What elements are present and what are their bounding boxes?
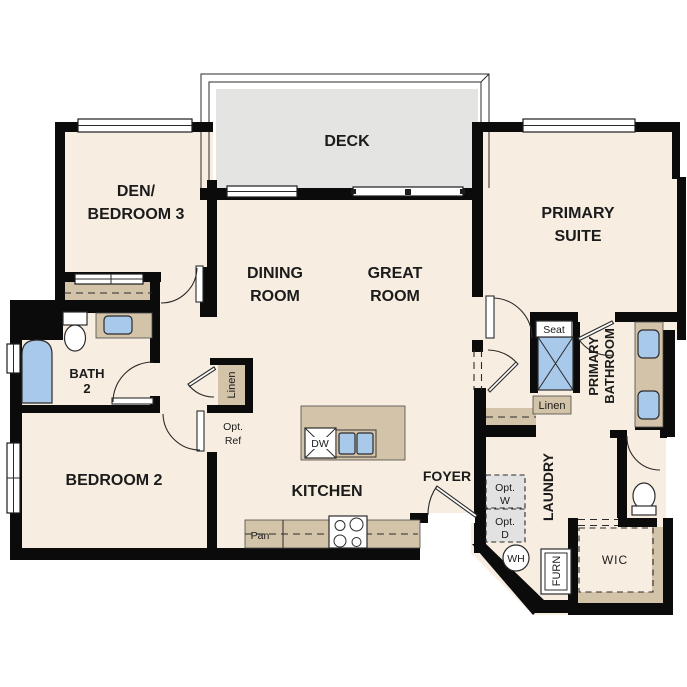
primary-suite-label-line2: SUITE (554, 228, 601, 245)
dining-label-line1: DINING (247, 265, 303, 282)
kitchen-label: KITCHEN (291, 483, 362, 500)
wic-shelf-bottom (577, 592, 664, 604)
floor-plan-drawing: DECK DEN/ BEDROOM 3 DINING ROOM GREAT RO… (0, 0, 687, 687)
bath2-window (7, 344, 20, 373)
water-heater-label: WH (507, 553, 525, 565)
opt-washer-label-line1: Opt. (495, 482, 515, 494)
deck-sliding-door (351, 187, 465, 196)
dishwasher-label: DW (311, 438, 329, 450)
den-label-line1: DEN/ (117, 183, 156, 200)
bath2-vanity (96, 313, 152, 338)
stove-fixture (329, 516, 367, 548)
wic-label: WIC (602, 553, 628, 567)
primary-bath-label-line1: PRIMARY (586, 336, 601, 396)
primary-sink-1 (638, 330, 659, 358)
primary-sink-2 (638, 391, 659, 419)
bath2-toilet-fixture (63, 312, 87, 351)
great-room-label-line1: GREAT (368, 265, 423, 282)
deck-area (201, 74, 489, 188)
bath2-label-line2: 2 (83, 381, 90, 396)
linen-laundry-label: Linen (539, 400, 566, 412)
foyer-label: FOYER (423, 468, 471, 484)
primary-suite-window (523, 119, 635, 132)
den-closet-bypass-doors (75, 274, 143, 284)
pantry-label: Pan (251, 530, 270, 542)
wc-toilet-fixture (632, 483, 656, 515)
opt-ref-label-line1: Opt. (223, 421, 243, 433)
opt-washer-label-line2: W (500, 495, 510, 507)
bathtub-fixture (22, 340, 52, 403)
laundry-label: LAUNDRY (540, 452, 556, 521)
bath2-label-line1: BATH (69, 366, 104, 381)
opt-dryer-label-line2: D (501, 529, 509, 541)
bedroom2-window (7, 443, 20, 513)
kitchen-sink-fixture (336, 430, 376, 457)
seat-label: Seat (543, 324, 565, 336)
primary-bath-label-line2: BATHROOM (602, 328, 617, 404)
floor-plan-page: DECK DEN/ BEDROOM 3 DINING ROOM GREAT RO… (0, 0, 687, 687)
dining-label-line2: ROOM (250, 288, 300, 305)
furnace-label: FURN (551, 556, 563, 587)
deck-window (227, 186, 297, 197)
bedroom2-label: BEDROOM 2 (66, 472, 163, 489)
den-label-line2: BEDROOM 3 (88, 206, 185, 223)
opt-ref-label-line2: Ref (225, 435, 241, 447)
opt-dryer-label-line1: Opt. (495, 516, 515, 528)
primary-suite-label-line1: PRIMARY (541, 205, 615, 222)
great-room-label-line2: ROOM (370, 288, 420, 305)
den-window (78, 119, 192, 132)
deck-label: DECK (324, 133, 370, 150)
linen-hall-label: Linen (226, 372, 238, 399)
